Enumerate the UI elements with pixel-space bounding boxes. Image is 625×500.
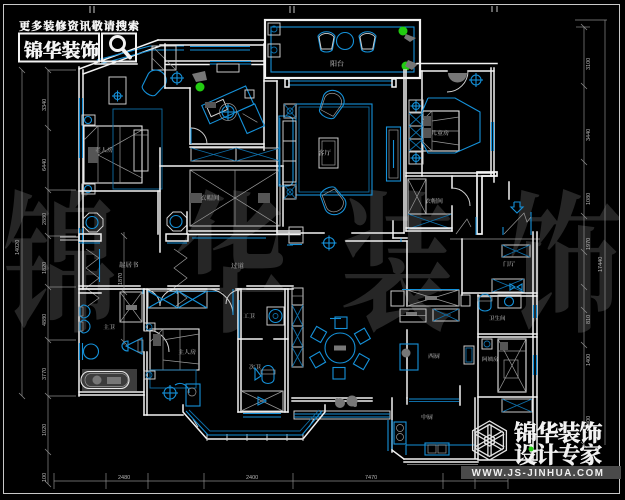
svg-text:2880: 2880 <box>42 213 48 225</box>
svg-text:7470: 7470 <box>365 475 377 481</box>
svg-text:2480: 2480 <box>118 475 130 481</box>
svg-text:1400: 1400 <box>586 354 592 366</box>
svg-text:810: 810 <box>586 315 592 324</box>
svg-text:1870: 1870 <box>118 273 124 285</box>
svg-text:3100: 3100 <box>586 58 592 70</box>
svg-text:4880: 4880 <box>42 314 48 326</box>
svg-text:1080: 1080 <box>586 193 592 205</box>
svg-text:17440: 17440 <box>598 257 604 272</box>
svg-text:2400: 2400 <box>246 475 258 481</box>
svg-text:100: 100 <box>42 473 48 482</box>
svg-text:6440: 6440 <box>42 159 48 171</box>
svg-text:14020: 14020 <box>15 240 21 255</box>
svg-text:1970: 1970 <box>586 238 592 250</box>
svg-text:1820: 1820 <box>42 262 48 274</box>
svg-text:3440: 3440 <box>586 129 592 141</box>
svg-text:3770: 3770 <box>42 368 48 380</box>
svg-text:3340: 3340 <box>42 99 48 111</box>
svg-text:1020: 1020 <box>42 424 48 436</box>
svg-text:WWW.JS-JINHUA.COM: WWW.JS-JINHUA.COM <box>472 468 605 479</box>
